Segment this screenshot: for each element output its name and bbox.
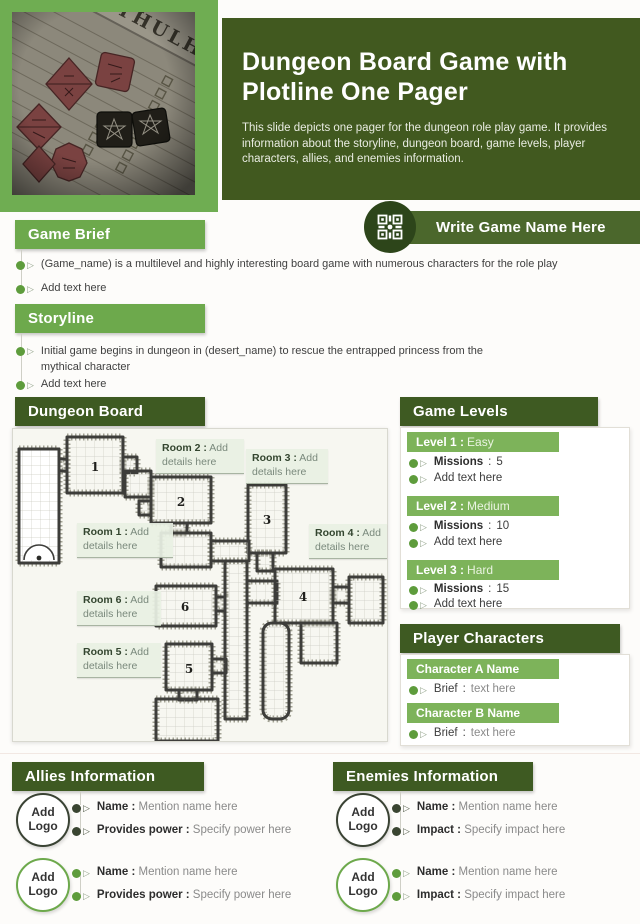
ally-power-row: ▷Provides power : Specify power here (72, 889, 291, 904)
bullet-dot-icon (392, 827, 401, 836)
level-2-bar: Level 2 :Medium (407, 496, 559, 516)
bullet-dot-icon (392, 869, 401, 878)
enemy-logo-placeholder[interactable]: Add Logo (336, 858, 390, 912)
room-5-label[interactable]: Room 5 : Add details here (77, 643, 161, 678)
enemy-logo-placeholder[interactable]: Add Logo (336, 793, 390, 847)
bullet-dot-icon (72, 892, 81, 901)
add-text-placeholder[interactable]: Add text here (41, 282, 106, 294)
game-brief-text[interactable]: (Game_name) is a multilevel and highly i… (41, 258, 558, 270)
bullet-arrow-icon: ▷ (83, 866, 90, 881)
bullet-dot-icon (409, 523, 418, 532)
bullet-dot-icon (409, 586, 418, 595)
bullet-dot-icon (409, 539, 418, 548)
room-number: 1 (91, 460, 99, 474)
enemy-name-row: ▷Name : Mention name here (392, 801, 558, 816)
bullet-dot-icon (72, 827, 81, 836)
player-characters-panel: Character A Name ▷Brief:text here Charac… (400, 654, 630, 746)
bullet-arrow-icon: ▷ (420, 472, 427, 487)
add-text-placeholder[interactable]: Add text here (41, 378, 106, 390)
bullet-arrow-icon: ▷ (27, 344, 34, 359)
enemies-heading: Enemies Information (333, 762, 533, 791)
game-brief-heading: Game Brief (15, 220, 205, 249)
game-levels-panel: Level 1 :Easy ▷Missions:5 ▷Add text here… (400, 427, 630, 609)
storyline-bullet: ▷ Initial game begins in dungeon in (des… (16, 344, 521, 376)
character-b-bar[interactable]: Character B Name (407, 703, 559, 723)
bullet-arrow-icon: ▷ (83, 889, 90, 904)
character-a-brief: ▷Brief:text here (409, 683, 516, 698)
enemy-impact-row: ▷Impact : Specify impact here (392, 889, 565, 904)
room-2-label[interactable]: Room 2 : Add details here (156, 439, 244, 474)
page-title: Dungeon Board Game with Plotline One Pag… (242, 48, 594, 107)
bullet-dot-icon (409, 730, 418, 739)
room-4-label[interactable]: Room 4 : Add details here (309, 524, 387, 559)
add-text-row: ▷Add text here (409, 598, 502, 613)
character-a-bar[interactable]: Character A Name (407, 659, 559, 679)
add-text-row: ▷Add text here (409, 472, 502, 487)
add-text-placeholder[interactable]: Add text here (434, 536, 502, 548)
bullet-arrow-icon: ▷ (420, 598, 427, 613)
section-divider (0, 753, 640, 754)
power-placeholder[interactable]: Specify power here (193, 824, 291, 836)
brief-placeholder[interactable]: text here (471, 683, 516, 695)
name-placeholder[interactable]: Mention name here (458, 801, 557, 813)
map-rooms (19, 437, 383, 741)
game-levels-heading: Game Levels (400, 397, 598, 426)
bullet-arrow-icon: ▷ (83, 824, 90, 839)
bullet-dot-icon (72, 804, 81, 813)
bullet-arrow-icon: ▷ (403, 889, 410, 904)
ally-power-row: ▷Provides power : Specify power here (72, 824, 291, 839)
qr-code-icon (364, 201, 416, 253)
bullet-arrow-icon: ▷ (420, 520, 427, 535)
storyline-text[interactable]: Initial game begins in dungeon in (deser… (41, 344, 521, 376)
storyline-heading: Storyline (15, 304, 205, 333)
bullet-arrow-icon: ▷ (420, 456, 427, 471)
bullet-arrow-icon: ▷ (403, 824, 410, 839)
room-number: 5 (185, 662, 193, 676)
enemy-name-row: ▷Name : Mention name here (392, 866, 558, 881)
add-text-placeholder[interactable]: Add text here (434, 472, 502, 484)
title-panel: Dungeon Board Game with Plotline One Pag… (222, 18, 640, 200)
bullet-arrow-icon: ▷ (420, 727, 427, 742)
room-1-label[interactable]: Room 1 : Add details here (77, 523, 173, 558)
room-number: 3 (263, 513, 271, 527)
bullet-arrow-icon: ▷ (27, 258, 34, 273)
bullet-arrow-icon: ▷ (420, 536, 427, 551)
impact-placeholder[interactable]: Specify impact here (464, 889, 565, 901)
ally-logo-placeholder[interactable]: Add Logo (16, 793, 70, 847)
bullet-dot-icon (16, 381, 25, 390)
bullet-arrow-icon: ▷ (403, 801, 410, 816)
dungeon-map-drawing: 1 2 3 4 5 6 (13, 429, 387, 741)
game-brief-bullet: ▷ (Game_name) is a multilevel and highly… (16, 258, 626, 273)
bullet-arrow-icon: ▷ (420, 683, 427, 698)
bullet-arrow-icon: ▷ (420, 583, 427, 598)
bullet-dot-icon (392, 892, 401, 901)
game-brief-bullet: ▷ Add text here (16, 282, 626, 297)
dungeon-map: 1 2 3 4 5 6 Room 2 : Add details here Ro… (12, 428, 388, 742)
add-text-placeholder[interactable]: Add text here (434, 598, 502, 610)
bullet-dot-icon (16, 261, 25, 270)
room-number: 2 (177, 495, 185, 509)
missions-row: ▷Missions:10 (409, 520, 509, 535)
missions-row: ▷Missions:5 (409, 456, 503, 471)
dice-photo: ZEW CTHULHU (12, 12, 195, 195)
ally-name-row: ▷Name : Mention name here (72, 801, 238, 816)
name-placeholder[interactable]: Mention name here (138, 801, 237, 813)
ally-logo-placeholder[interactable]: Add Logo (16, 858, 70, 912)
player-characters-heading: Player Characters (400, 624, 620, 653)
level-3-bar: Level 3 :Hard (407, 560, 559, 580)
room-number: 6 (181, 600, 189, 614)
bullet-arrow-icon: ▷ (27, 378, 34, 393)
brief-placeholder[interactable]: text here (471, 727, 516, 739)
header-photo-panel: ZEW CTHULHU (0, 0, 218, 212)
missions-row: ▷Missions:15 (409, 583, 509, 598)
page-description: This slide depicts one pager for the dun… (242, 121, 610, 168)
power-placeholder[interactable]: Specify power here (193, 889, 291, 901)
bullet-arrow-icon: ▷ (403, 866, 410, 881)
level-1-bar: Level 1 :Easy (407, 432, 559, 452)
room-3-label[interactable]: Room 3 : Add details here (246, 449, 328, 484)
ally-name-row: ▷Name : Mention name here (72, 866, 238, 881)
bullet-dot-icon (16, 347, 25, 356)
impact-placeholder[interactable]: Specify impact here (464, 824, 565, 836)
allies-heading: Allies Information (12, 762, 204, 791)
room-number: 4 (299, 590, 307, 604)
storyline-bullet: ▷ Add text here (16, 378, 521, 393)
add-text-row: ▷Add text here (409, 536, 502, 551)
name-placeholder[interactable]: Mention name here (138, 866, 237, 878)
bullet-dot-icon (409, 475, 418, 484)
character-b-brief: ▷Brief:text here (409, 727, 516, 742)
room-6-label[interactable]: Room 6 : Add details here (77, 591, 161, 626)
bullet-dot-icon (409, 459, 418, 468)
bullet-dot-icon (409, 686, 418, 695)
bullet-dot-icon (16, 285, 25, 294)
bullet-dot-icon (392, 804, 401, 813)
bullet-arrow-icon: ▷ (27, 282, 34, 297)
slide-page: ZEW CTHULHU (0, 0, 640, 924)
name-placeholder[interactable]: Mention name here (458, 866, 557, 878)
game-name-banner[interactable]: Write Game Name Here (388, 211, 640, 244)
bullet-dot-icon (72, 869, 81, 878)
bullet-dot-icon (409, 601, 418, 610)
bullet-arrow-icon: ▷ (83, 801, 90, 816)
enemy-impact-row: ▷Impact : Specify impact here (392, 824, 565, 839)
dungeon-board-heading: Dungeon Board (15, 397, 205, 426)
